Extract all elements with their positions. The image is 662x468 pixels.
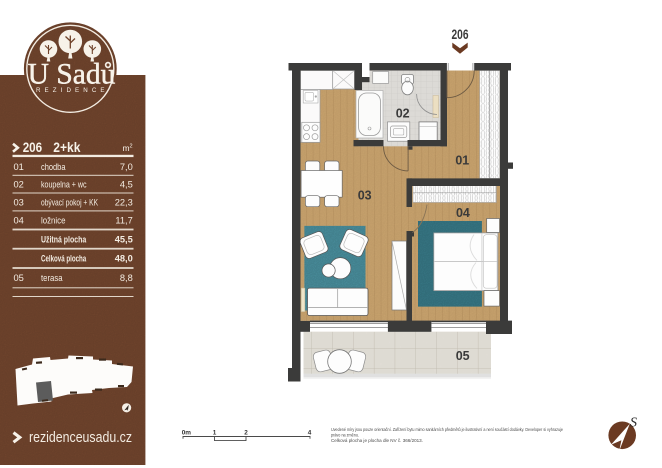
svg-text:04: 04	[14, 216, 24, 226]
svg-text:Uvedené míry jsou pouze orient: Uvedené míry jsou pouze orientační. Zaří…	[331, 427, 564, 432]
svg-text:01: 01	[14, 162, 24, 172]
svg-text:terasa: terasa	[41, 273, 63, 283]
svg-text:Celková plocha: Celková plocha	[41, 254, 87, 264]
svg-text:ložnice: ložnice	[41, 216, 66, 226]
svg-text:02: 02	[14, 180, 24, 190]
svg-text:03: 03	[358, 189, 372, 203]
svg-text:206: 206	[23, 140, 43, 155]
svg-text:11,7: 11,7	[115, 216, 132, 226]
svg-text:8,8: 8,8	[120, 273, 133, 283]
svg-text:22,3: 22,3	[115, 197, 133, 207]
svg-text:4,5: 4,5	[120, 180, 133, 190]
svg-text:48,0: 48,0	[115, 254, 133, 264]
svg-text:rezidenceusadu.cz: rezidenceusadu.cz	[29, 429, 132, 446]
svg-text:Celková plocha je plocha dle N: Celková plocha je plocha dle NV č. 366/2…	[331, 438, 423, 443]
svg-text:chodba: chodba	[41, 162, 66, 172]
svg-text:Užitná plocha: Užitná plocha	[41, 234, 87, 244]
svg-text:2+kk: 2+kk	[53, 140, 81, 155]
svg-text:U Sadů: U Sadů	[28, 59, 116, 91]
svg-text:REZIDENCE: REZIDENCE	[36, 87, 109, 94]
svg-text:02: 02	[396, 107, 410, 121]
svg-text:206: 206	[452, 27, 469, 42]
svg-text:03: 03	[14, 197, 24, 207]
svg-text:2: 2	[244, 430, 248, 437]
svg-text:1: 1	[213, 430, 217, 437]
svg-text:05: 05	[14, 273, 24, 283]
svg-text:01: 01	[455, 153, 469, 167]
svg-text:obývací pokoj + KK: obývací pokoj + KK	[41, 197, 99, 207]
svg-text:05: 05	[456, 349, 470, 363]
svg-text:4: 4	[308, 430, 312, 437]
svg-text:2: 2	[130, 144, 133, 150]
svg-text:7,0: 7,0	[120, 162, 133, 172]
svg-text:S: S	[630, 416, 637, 431]
svg-text:koupelna + wc: koupelna + wc	[41, 180, 87, 190]
svg-text:právo na změnu.: právo na změnu.	[331, 433, 359, 438]
svg-text:04: 04	[456, 206, 470, 220]
svg-text:0m: 0m	[182, 430, 192, 437]
svg-text:45,5: 45,5	[115, 234, 133, 244]
